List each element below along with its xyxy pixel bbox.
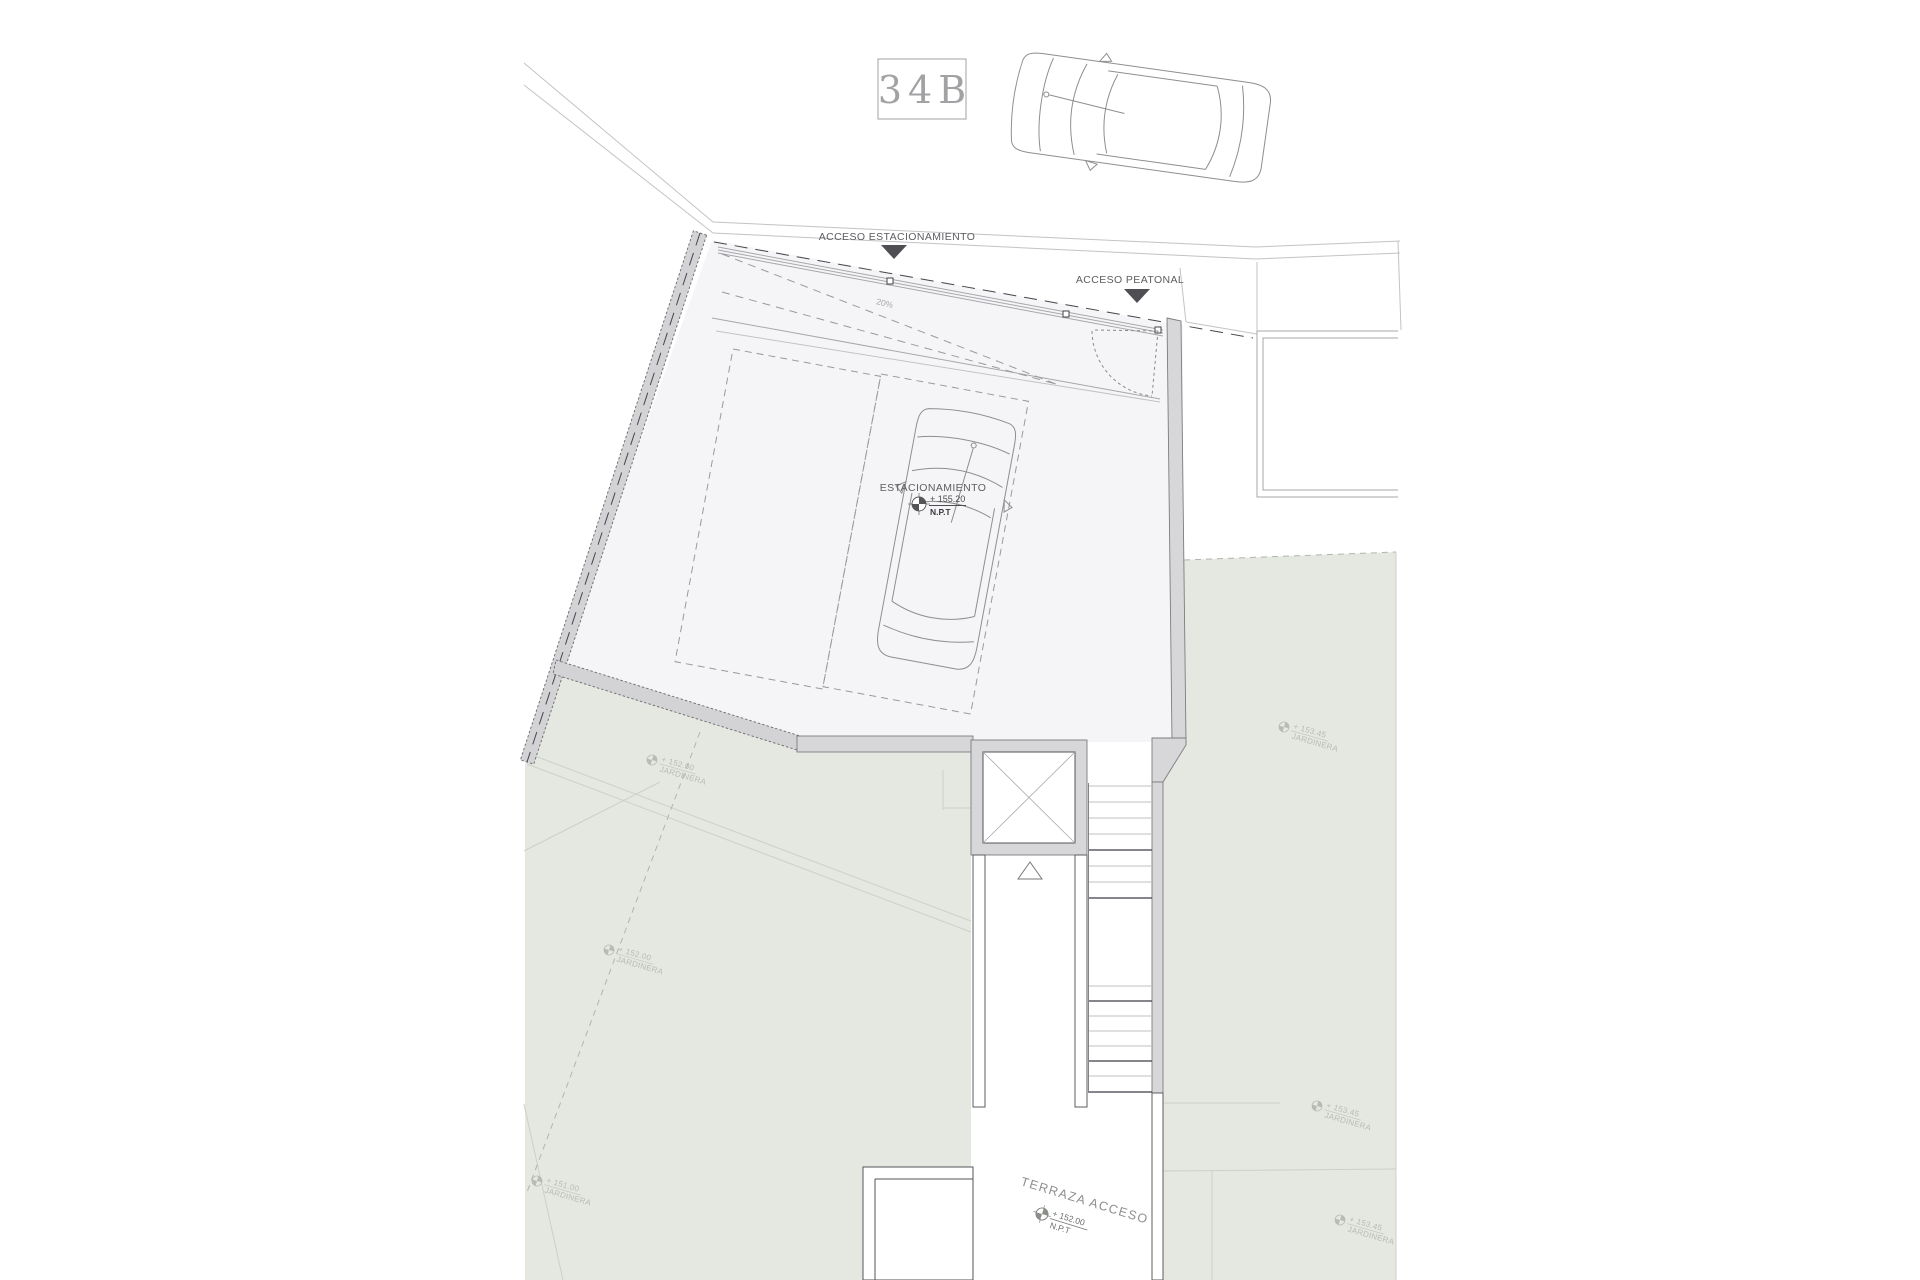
corridor-wall-right [1075, 855, 1087, 1107]
car-body [1007, 50, 1273, 184]
car-roof-side [1108, 71, 1217, 86]
car-rear-deck [1230, 86, 1249, 178]
lower-left-room [863, 1167, 973, 1280]
gate-post [1063, 311, 1069, 317]
car-windshield [1065, 63, 1087, 155]
car-hood-line [1034, 57, 1053, 151]
room-walls [863, 1167, 973, 1280]
lot-number: 34B [878, 68, 972, 112]
car-roof-side [1097, 154, 1206, 169]
acceso-peatonal-label: ACCESO PEATONAL [1076, 274, 1184, 286]
street-edge [1256, 253, 1400, 259]
parking-area [527, 240, 1183, 758]
down-triangle-icon [881, 245, 907, 259]
corridor-wall-left [973, 855, 985, 1107]
street-edge [713, 222, 1256, 247]
street-edge [1398, 241, 1401, 330]
car-roof-front [1099, 73, 1118, 153]
right-garden [1163, 552, 1396, 1280]
neighbor-lot-outline-inner [1263, 338, 1398, 490]
south-wall [797, 736, 973, 752]
floor-plan-drawing: 20% [0, 0, 1920, 1280]
parking-label: ESTACIONAMIENTO [880, 482, 987, 494]
acceso-estacionamiento-label: ACCESO ESTACIONAMIENTO [819, 231, 976, 243]
gate-post [887, 278, 893, 284]
terrace-label-group: TERRAZA ACCESO + 152.00 N.P.T [1019, 1174, 1150, 1240]
car-antenna-line [1048, 95, 1125, 114]
elevator-shaft [971, 740, 1087, 855]
neighbor-lot [1257, 331, 1398, 497]
down-triangle-icon [1124, 289, 1150, 303]
street-edge [1256, 241, 1400, 247]
parking-level: + 155.20 [930, 494, 965, 504]
car-mirror [1099, 53, 1112, 64]
stair-wall-lower [1152, 1093, 1163, 1280]
car-antenna [1044, 92, 1050, 98]
level-marker-icon: + 152.00 N.P.T [1030, 1203, 1091, 1241]
parking-datum: N.P.T [930, 507, 951, 517]
street-edge [524, 63, 713, 222]
street-car [1005, 42, 1274, 194]
corridor [973, 855, 1087, 1107]
street-edge [524, 85, 713, 233]
floor-plan-canvas: 20% [0, 0, 1920, 1280]
neighbor-lot-outline [1257, 331, 1398, 497]
stair-wall [1152, 782, 1163, 1093]
lot-number-box: 34B [878, 59, 972, 119]
car-rear-window [1205, 86, 1226, 170]
up-arrow-icon [1018, 862, 1042, 879]
